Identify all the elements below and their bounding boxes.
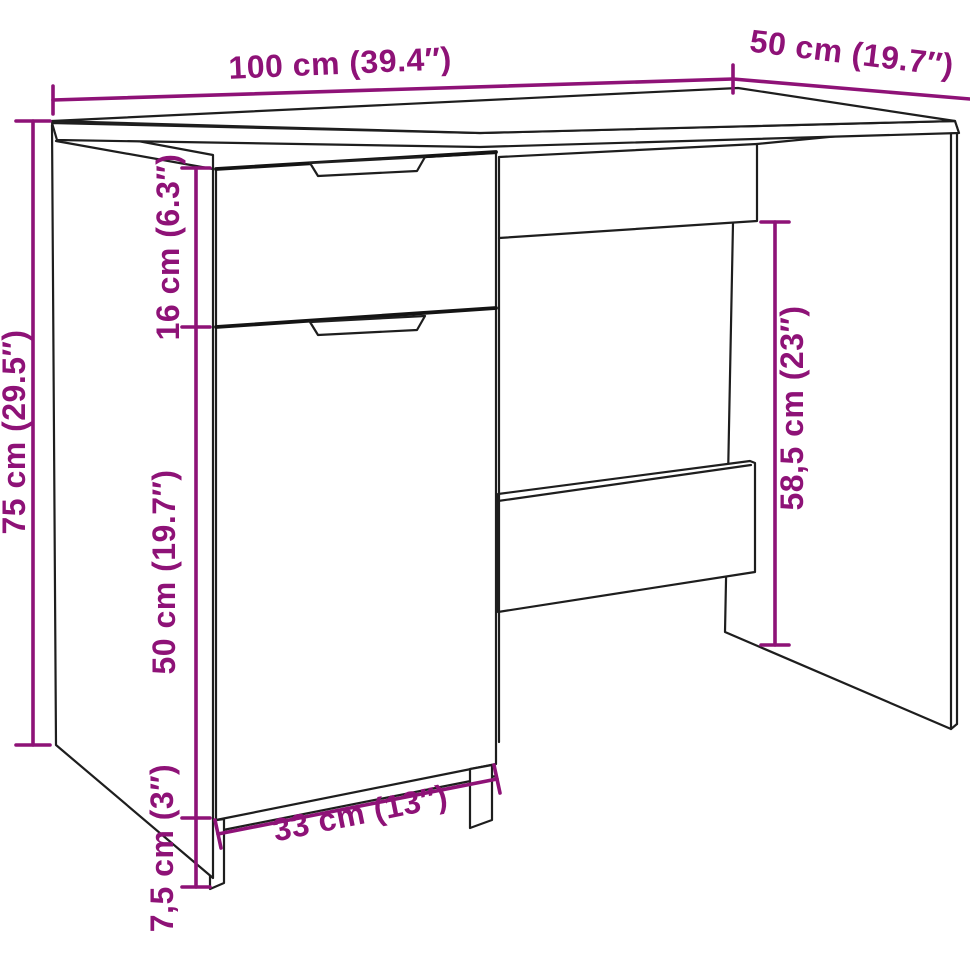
right-side-panel bbox=[725, 125, 951, 729]
drawer-height-dimension-label: 16 cm (6.3″) bbox=[150, 154, 186, 341]
base-height-dimension-label: 7,5 cm (3″) bbox=[144, 764, 180, 932]
front-apron bbox=[499, 144, 757, 238]
clearance-dimension-label: 58,5 cm (23″) bbox=[774, 305, 810, 510]
desk-line-art bbox=[52, 88, 959, 889]
left-side-panel bbox=[52, 125, 213, 878]
height-dimension-label: 75 cm (29.5″) bbox=[0, 329, 32, 534]
right-foot bbox=[470, 765, 492, 828]
desk-dimension-diagram: 100 cm (39.4″) 50 cm (19.7″) 75 cm (29.5… bbox=[0, 0, 970, 971]
diagram-page: 100 cm (39.4″) 50 cm (19.7″) 75 cm (29.5… bbox=[0, 0, 970, 971]
door-height-dimension-label: 50 cm (19.7″) bbox=[146, 469, 182, 674]
cabinet-front bbox=[216, 153, 496, 820]
depth-dimension-label: 50 cm (19.7″) bbox=[748, 23, 956, 84]
width-dimension-label: 100 cm (39.4″) bbox=[228, 40, 453, 86]
